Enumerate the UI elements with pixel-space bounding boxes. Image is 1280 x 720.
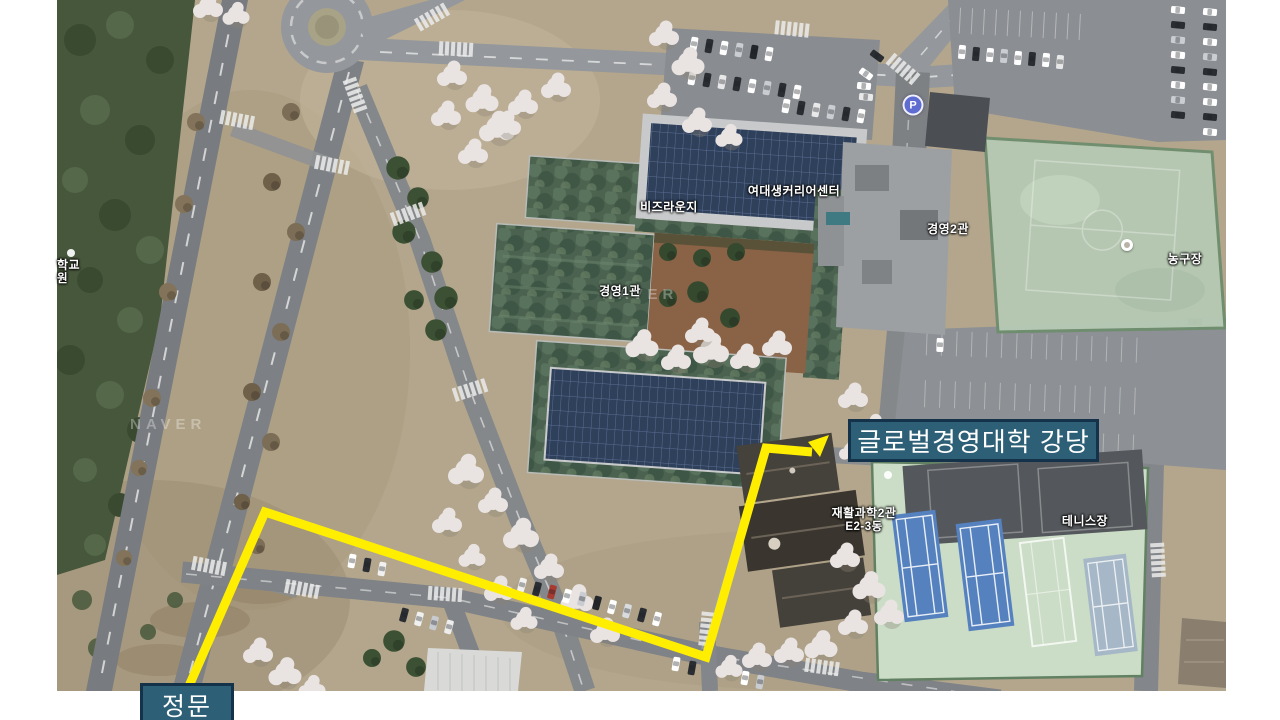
- basketball-court-marker-dot: [1121, 239, 1133, 251]
- origin-label-text: 정문: [162, 687, 212, 720]
- map-label-rehab-line2: E2-3동: [832, 520, 897, 534]
- origin-label: 정문: [140, 683, 234, 720]
- map-label-biz-lounge: 비즈라운지: [640, 200, 698, 214]
- basketball-court: [985, 138, 1225, 332]
- map-provider-watermark: NAVER: [130, 416, 206, 433]
- slide-canvas: 비즈라운지 여대생커리어센터 경영1관 경영2관 농구장 테니스장 재활과학2관…: [0, 0, 1280, 720]
- edge-marker-dot: [67, 249, 75, 257]
- map-label-edge-line2: 원: [57, 272, 80, 286]
- map-label-rehab-line1: 재활과학2관: [832, 506, 897, 520]
- parking-marker: P: [903, 95, 924, 116]
- map-label-tennis-court: 테니스장: [1062, 514, 1108, 528]
- tennis-corner-dot: [884, 471, 892, 479]
- map-label-rehab-building: 재활과학2관 E2-3동: [832, 506, 897, 534]
- destination-label-text: 글로벌경영대학 강당: [857, 422, 1090, 459]
- tennis-courts: [872, 449, 1148, 680]
- map-label-edge-clipped: 학교 원: [57, 258, 80, 286]
- satellite-imagery: [57, 0, 1226, 691]
- map-label-mgmt-hall-2: 경영2관: [927, 222, 969, 236]
- satellite-map: 비즈라운지 여대생커리어센터 경영1관 경영2관 농구장 테니스장 재활과학2관…: [57, 0, 1226, 691]
- map-label-mgmt-hall-1: 경영1관: [599, 284, 641, 298]
- destination-label: 글로벌경영대학 강당: [848, 419, 1099, 462]
- map-label-edge-line1: 학교: [57, 258, 80, 272]
- map-label-career-center: 여대생커리어센터: [748, 184, 840, 198]
- map-label-basketball-court: 농구장: [1168, 252, 1203, 266]
